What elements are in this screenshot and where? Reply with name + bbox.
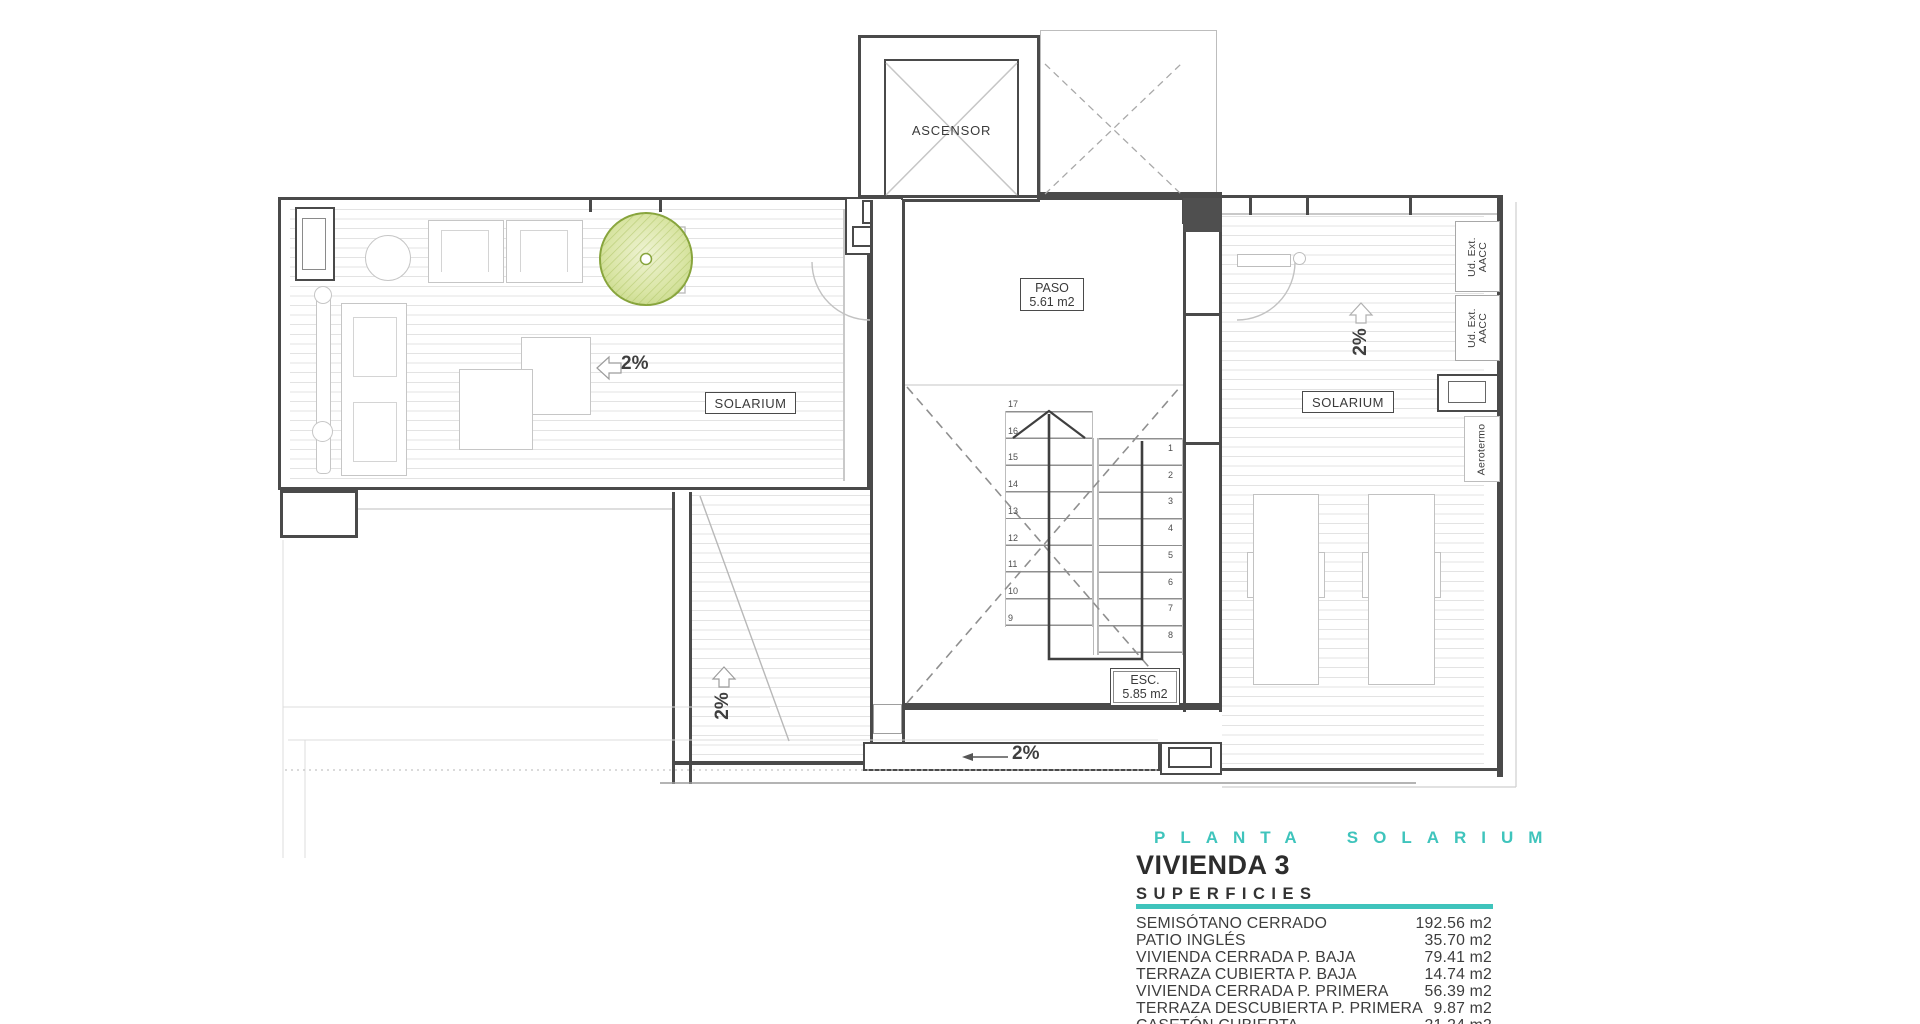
ac-outdoor-unit: Ud. Ext. AACC <box>1455 221 1500 292</box>
row-value: 192.56 m2 <box>1416 915 1492 932</box>
accent-bar <box>1136 904 1493 909</box>
right-solarium-label: SOLARIUM <box>1302 391 1394 413</box>
door-knob <box>1293 252 1306 265</box>
esc-name: ESC. <box>1130 673 1159 687</box>
row-label: PATIO INGLÉS <box>1136 932 1246 949</box>
stair-step-number: 12 <box>1008 534 1018 543</box>
row-label: VIVIENDA CERRADA P. BAJA <box>1136 949 1356 966</box>
stair-step-number: 1 <box>1168 444 1173 453</box>
wall-niche <box>873 704 902 734</box>
lounger-armrest <box>1434 552 1441 598</box>
round-table <box>365 235 411 281</box>
row-value: 14.74 m2 <box>1425 966 1492 983</box>
aerotermo-unit-inner <box>1448 381 1486 403</box>
paso-name: PASO <box>1035 281 1069 295</box>
aerotermo-label-box: Aerotermo <box>1464 416 1500 482</box>
walkway-slope-label: 2% <box>1012 744 1039 763</box>
row-label: VIVIENDA CERRADA P. PRIMERA <box>1136 983 1389 1000</box>
stair-step-number: 15 <box>1008 453 1018 462</box>
elevator-shaft-secondary <box>1040 30 1217 198</box>
table-row: SEMISÓTANO CERRADO 192.56 m2 <box>1136 915 1492 932</box>
stair-east-wall <box>1183 200 1222 712</box>
row-label: TERRAZA DESCUBIERTA P. PRIMERA <box>1136 1000 1423 1017</box>
ac-unit-label: Ud. Ext. AACC <box>1467 308 1489 348</box>
table-row: CASETÓN CUBIERTA 21.24 m2 <box>1136 1017 1492 1024</box>
terrace-west-wall <box>672 492 692 784</box>
left-solarium-label: SOLARIUM <box>705 392 796 414</box>
left-slope-label: 2% <box>621 354 648 373</box>
armchair <box>506 220 583 283</box>
stair-step-number: 2 <box>1168 471 1173 480</box>
planter-box <box>295 207 335 281</box>
sofa-seats <box>341 303 407 476</box>
right-wing-south-wall <box>1222 768 1503 771</box>
sofa-backrest <box>316 293 331 474</box>
surfaces-table: SEMISÓTANO CERRADO 192.56 m2 PATIO INGLÉ… <box>1136 915 1492 1024</box>
right-solarium-decking <box>1222 216 1484 768</box>
wall-tick <box>1249 197 1252 215</box>
stair-step-number: 7 <box>1168 604 1173 613</box>
stair-step-number: 3 <box>1168 497 1173 506</box>
row-value: 9.87 m2 <box>1434 1000 1492 1017</box>
stair-step-number: 9 <box>1008 614 1013 623</box>
walkway-end-block-inner <box>1168 747 1212 768</box>
stair-step-number: 6 <box>1168 578 1173 587</box>
row-value: 79.41 m2 <box>1425 949 1492 966</box>
lounger-armrest <box>1318 552 1325 598</box>
row-value: 56.39 m2 <box>1425 983 1492 1000</box>
esc-label: ESC. 5.85 m2 <box>1110 668 1180 706</box>
right-wing-inner-wall-line <box>1222 213 1503 215</box>
left-wing-step-block <box>280 490 358 538</box>
walkway-end-block <box>1160 742 1222 775</box>
flight-separator <box>1093 438 1098 655</box>
sun-lounger <box>1253 494 1319 685</box>
lounger-armrest <box>1247 552 1254 598</box>
ac-outdoor-unit: Ud. Ext. AACC <box>1455 295 1500 361</box>
stair-step-number: 16 <box>1008 427 1018 436</box>
table-row: PATIO INGLÉS 35.70 m2 <box>1136 932 1492 949</box>
row-value: 35.70 m2 <box>1425 932 1492 949</box>
stair-step-number: 13 <box>1008 507 1018 516</box>
door-leaf <box>1237 254 1291 267</box>
unit-title: VIVIENDA 3 <box>1136 850 1290 881</box>
sun-lounger <box>1368 494 1435 685</box>
wall-tick <box>589 197 592 212</box>
ac-unit-label: Ud. Ext. AACC <box>1467 237 1489 277</box>
stair-step-number: 8 <box>1168 631 1173 640</box>
stair-step-number: 5 <box>1168 551 1173 560</box>
aerotermo-label: Aerotermo <box>1477 423 1488 475</box>
armchair-seat <box>441 230 489 272</box>
sofa-cushion <box>353 402 397 462</box>
armchair <box>428 220 504 283</box>
stair-step-number: 4 <box>1168 524 1173 533</box>
surfaces-table-title: SUPERFICIES <box>1136 885 1318 904</box>
aerotermo-unit <box>1437 374 1499 412</box>
stair-step-number: 14 <box>1008 480 1018 489</box>
sofa-side-table <box>312 421 333 442</box>
wall-tick <box>659 197 662 212</box>
planter-box-inner <box>302 218 326 270</box>
east-wall-pillar <box>1183 198 1222 232</box>
east-wall-segment <box>1183 313 1222 445</box>
paso-label: PASO 5.61 m2 <box>1020 278 1084 311</box>
row-label: TERRAZA CUBIERTA P. BAJA <box>1136 966 1357 983</box>
lounger-armrest <box>1362 552 1369 598</box>
sofa-cushion <box>353 317 397 377</box>
wall-tick <box>1306 197 1309 215</box>
top-wall <box>858 195 1503 198</box>
elevator-label: ASCENSOR <box>884 123 1019 138</box>
table-row: VIVIENDA CERRADA P. PRIMERA 56.39 m2 <box>1136 983 1492 1000</box>
sofa-side-table <box>314 286 332 304</box>
floor-plan-sheet: 2% SOLARIUM ASCENSOR 1716151413121110912… <box>0 0 1920 1024</box>
table-row: TERRAZA DESCUBIERTA P. PRIMERA 9.87 m2 <box>1136 1000 1492 1017</box>
row-label: SEMISÓTANO CERRADO <box>1136 915 1327 932</box>
row-label: CASETÓN CUBIERTA <box>1136 1017 1298 1024</box>
stair-step-number: 17 <box>1008 400 1018 409</box>
table-row: VIVIENDA CERRADA P. BAJA 79.41 m2 <box>1136 949 1492 966</box>
table-row: TERRAZA CUBIERTA P. BAJA 14.74 m2 <box>1136 966 1492 983</box>
terrace-slope-label: 2% <box>702 686 742 726</box>
row-value: 21.24 m2 <box>1425 1017 1492 1024</box>
paso-area: 5.61 m2 <box>1029 295 1074 309</box>
stair-step-number: 10 <box>1008 587 1018 596</box>
stair-step-number: 11 <box>1008 560 1017 569</box>
wall-tick <box>1409 197 1412 215</box>
plan-title: PLANTA SOLARIUM <box>1154 828 1557 848</box>
armchair-seat <box>520 230 568 272</box>
right-slope-label: 2% <box>1340 322 1380 362</box>
esc-area: 5.85 m2 <box>1122 687 1167 701</box>
stair-west-wall <box>870 200 905 742</box>
low-table <box>459 369 533 450</box>
stair-flight-upper <box>1005 411 1093 627</box>
